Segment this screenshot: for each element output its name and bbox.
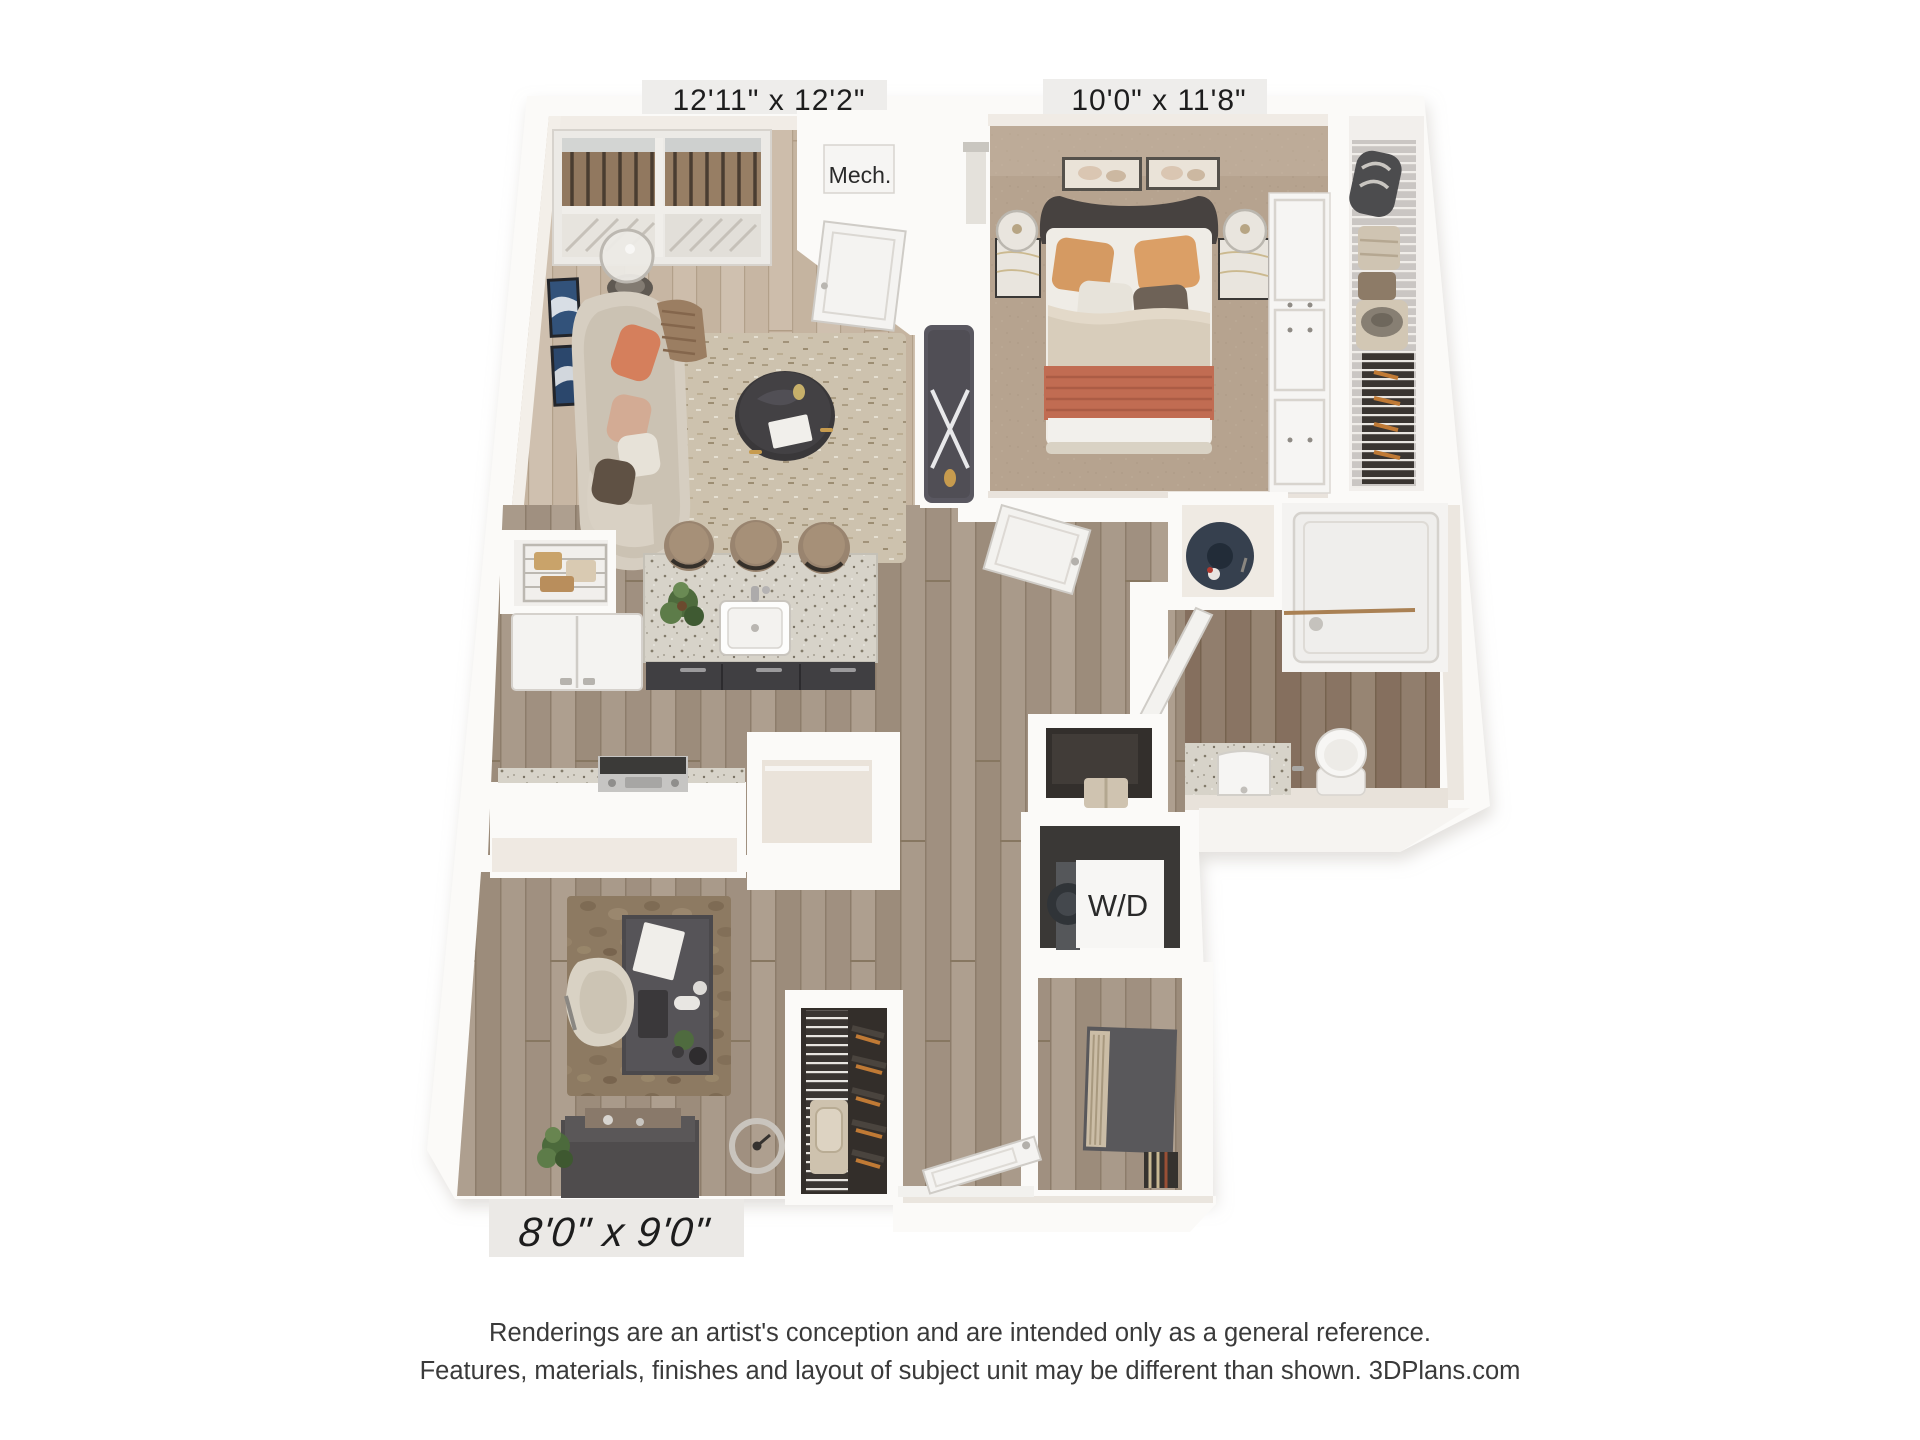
svg-text:Mech.: Mech.: [829, 162, 892, 188]
svg-text:W/D: W/D: [1088, 888, 1148, 923]
svg-text:Features, materials, finishes: Features, materials, finishes and layout…: [420, 1357, 1521, 1385]
svg-text:8'0" x 9'0": 8'0" x 9'0": [517, 1209, 713, 1255]
svg-text:Renderings are an artist's con: Renderings are an artist's conception an…: [489, 1319, 1431, 1347]
svg-text:10'0" x 11'8": 10'0" x 11'8": [1071, 84, 1246, 117]
svg-text:12'11" x 12'2": 12'11" x 12'2": [673, 84, 866, 117]
